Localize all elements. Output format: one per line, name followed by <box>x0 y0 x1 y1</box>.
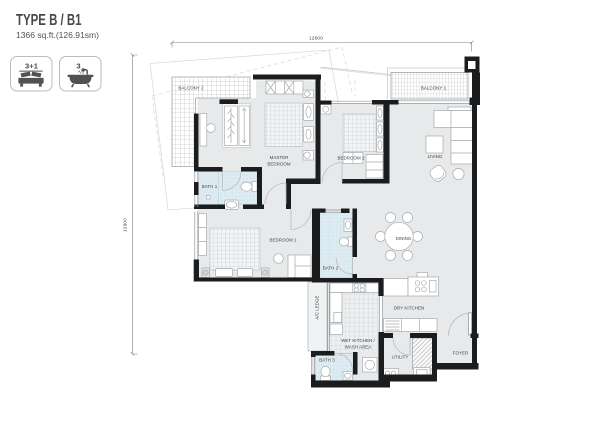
svg-text:A/C LEDGE: A/C LEDGE <box>315 295 320 319</box>
svg-text:WASH AREA: WASH AREA <box>345 345 372 350</box>
svg-text:DRY KITCHEN: DRY KITCHEN <box>394 306 424 311</box>
svg-text:BEDROOM: BEDROOM <box>267 162 291 167</box>
svg-text:TYPE B / B1: TYPE B / B1 <box>16 12 82 29</box>
svg-text:BATH 1: BATH 1 <box>202 184 218 189</box>
svg-text:UTILITY: UTILITY <box>392 355 409 360</box>
svg-text:3+1: 3+1 <box>25 62 39 71</box>
svg-text:3: 3 <box>76 62 80 71</box>
svg-text:BEDROOM 1: BEDROOM 1 <box>269 238 297 243</box>
svg-text:LIVING: LIVING <box>428 154 443 159</box>
svg-text:12600: 12600 <box>309 36 323 41</box>
svg-text:BALCONY 2: BALCONY 2 <box>178 85 204 90</box>
svg-text:BATH 2: BATH 2 <box>323 266 339 271</box>
svg-text:BALCONY 1: BALCONY 1 <box>421 86 447 91</box>
svg-text:MASTER: MASTER <box>270 155 289 160</box>
svg-text:1366 sq.ft.(126.91sm): 1366 sq.ft.(126.91sm) <box>16 30 99 40</box>
svg-text:12900: 12900 <box>123 218 128 232</box>
svg-text:BATH 3: BATH 3 <box>319 358 335 363</box>
svg-text:DINING: DINING <box>396 236 412 241</box>
svg-text:WET KITCHEN /: WET KITCHEN / <box>341 338 375 343</box>
svg-text:BEDROOM 2: BEDROOM 2 <box>337 156 365 161</box>
svg-text:FOYER: FOYER <box>453 351 469 356</box>
